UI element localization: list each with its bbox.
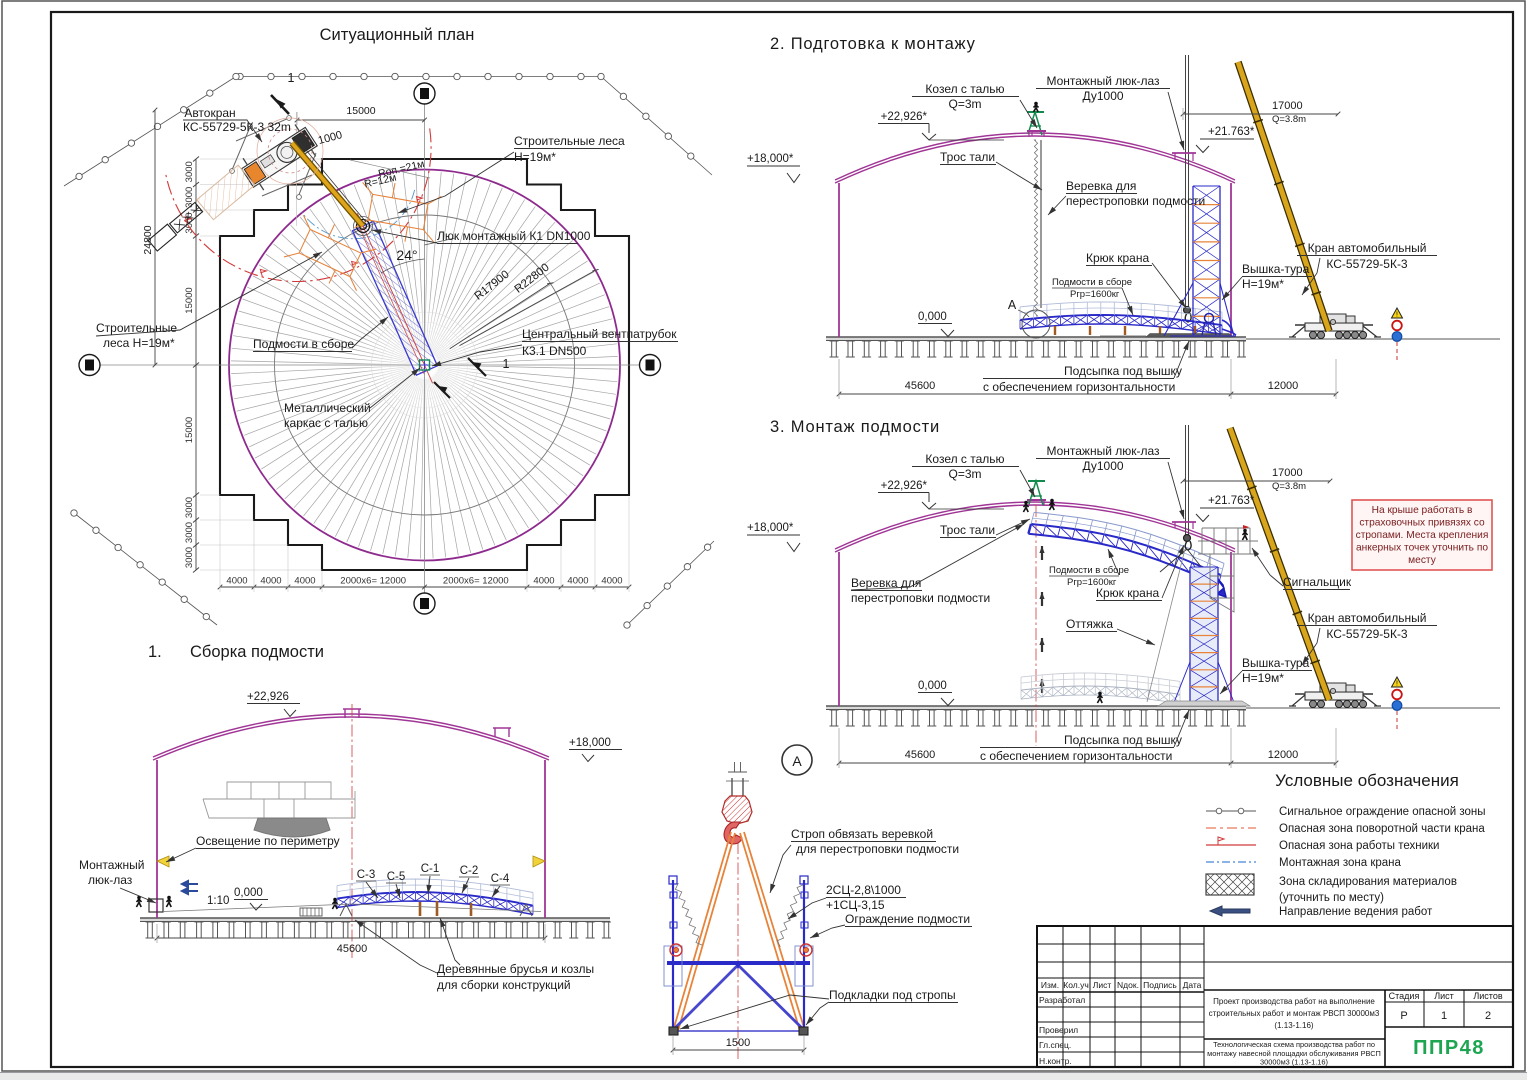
svg-text:Р: Р [1400, 1010, 1407, 1022]
svg-text:каркас с талью: каркас с талью [284, 416, 368, 430]
svg-text:Строп обвязать веревкой: Строп обвязать веревкой [791, 827, 933, 841]
svg-text:+18,000: +18,000 [569, 737, 611, 749]
svg-text:Кол.уч: Кол.уч [1063, 980, 1089, 990]
svg-text:3000: 3000 [184, 187, 195, 208]
svg-text:Ду1000: Ду1000 [1082, 459, 1123, 473]
svg-text:Проверил: Проверил [1039, 1025, 1078, 1035]
svg-text:+18,000*: +18,000* [747, 153, 794, 165]
svg-text:А: А [1008, 298, 1017, 312]
svg-text:1.: 1. [148, 643, 162, 661]
svg-text:1: 1 [1441, 1010, 1447, 1022]
svg-text:+22,926*: +22,926* [881, 480, 928, 492]
svg-text:С-4: С-4 [491, 873, 510, 885]
svg-text:Монтажный люк-лаз: Монтажный люк-лаз [1046, 444, 1160, 458]
svg-text:+22,926*: +22,926* [881, 111, 928, 123]
svg-text:Трос тали: Трос тали [940, 150, 995, 164]
svg-text:1: 1 [288, 71, 295, 85]
svg-text:12000: 12000 [1268, 380, 1299, 392]
svg-text:К3.1 DN500: К3.1 DN500 [522, 344, 587, 358]
svg-text:0,000: 0,000 [234, 887, 263, 899]
svg-text:Сборка подмости: Сборка подмости [190, 643, 324, 661]
svg-text:С-1: С-1 [421, 863, 440, 875]
svg-text:Лист: Лист [1434, 991, 1454, 1001]
svg-text:0,000: 0,000 [918, 311, 947, 323]
svg-text:4000: 4000 [260, 576, 281, 587]
svg-text:С-3: С-3 [357, 869, 376, 881]
svg-text:анкерных точек уточнить по: анкерных точек уточнить по [1356, 543, 1488, 554]
svg-text:Направление ведения работ: Направление ведения работ [1279, 906, 1433, 918]
svg-text:(уточнить по месту): (уточнить по месту) [1279, 892, 1384, 904]
svg-text:Ситуационный план: Ситуационный план [320, 26, 475, 44]
svg-text:Сигнальщик: Сигнальщик [1283, 575, 1352, 589]
svg-text:леса Н=19м*: леса Н=19м* [103, 336, 175, 350]
svg-text:Сигнальное ограждение опасной: Сигнальное ограждение опасной зоны [1279, 806, 1486, 818]
svg-text:Подпись: Подпись [1143, 980, 1177, 990]
svg-text:17000: 17000 [1272, 467, 1303, 479]
svg-text:для сборки конструкций: для сборки конструкций [437, 978, 571, 992]
svg-text:Автокран: Автокран [184, 106, 235, 120]
svg-text:месту: месту [1408, 555, 1437, 566]
svg-text:Q=3m: Q=3m [948, 467, 981, 481]
svg-text:24°: 24° [396, 247, 417, 263]
svg-text:Козел с талью: Козел с талью [925, 82, 1004, 96]
svg-text:Подкладки под стропы: Подкладки под стропы [829, 988, 956, 1002]
svg-text:Подсыпка под вышку: Подсыпка под вышку [1064, 364, 1182, 378]
svg-text:Технологическая схема производ: Технологическая схема производства работ… [1213, 1040, 1375, 1049]
svg-text:Разработал: Разработал [1039, 995, 1085, 1005]
svg-text:КС-55729-5К-3: КС-55729-5К-3 [1326, 257, 1408, 271]
svg-text:Проект производства работ на в: Проект производства работ на выполнение [1213, 997, 1375, 1006]
svg-text:Кран автомобильный: Кран автомобильный [1308, 611, 1427, 625]
svg-text:Н=19м*: Н=19м* [1242, 277, 1284, 291]
svg-text:Монтажный: Монтажный [79, 858, 144, 872]
svg-text:3000: 3000 [184, 497, 195, 518]
svg-text:2: 2 [1485, 1010, 1491, 1022]
svg-text:для перестроповки подмости: для перестроповки подмости [796, 842, 959, 856]
svg-text:Подмости в сборе: Подмости в сборе [1052, 277, 1132, 288]
svg-text:45600: 45600 [905, 380, 936, 392]
svg-text:2000x6= 12000: 2000x6= 12000 [340, 576, 406, 587]
svg-text:4000: 4000 [533, 576, 554, 587]
svg-text:А: А [792, 753, 802, 769]
svg-text:Веревка для: Веревка для [1066, 179, 1136, 193]
svg-text:Н=19м*: Н=19м* [514, 150, 556, 164]
svg-text:1:10: 1:10 [207, 895, 229, 907]
svg-text:Опасная зона работы техники: Опасная зона работы техники [1279, 840, 1439, 852]
svg-text:Подмости в сборе: Подмости в сборе [253, 337, 354, 351]
svg-text:ППР48: ППР48 [1413, 1037, 1485, 1059]
svg-text:Трос тали: Трос тали [940, 523, 995, 537]
svg-text:КС-55729-5К-3 32m: КС-55729-5К-3 32m [183, 120, 291, 134]
svg-text:Лист: Лист [1093, 980, 1112, 990]
svg-text:КС-55729-5К-3: КС-55729-5К-3 [1326, 627, 1408, 641]
svg-text:45600: 45600 [905, 749, 936, 761]
svg-text:!: ! [1396, 681, 1398, 688]
svg-text:Освещение по периметру: Освещение по периметру [196, 834, 340, 848]
svg-text:4000: 4000 [601, 576, 622, 587]
svg-text:(1.13-1.16): (1.13-1.16) [1274, 1021, 1313, 1030]
svg-text:15000: 15000 [184, 417, 195, 443]
svg-text:Гл.спец.: Гл.спец. [1039, 1040, 1071, 1050]
svg-text:3. Монтаж подмости: 3. Монтаж подмости [770, 418, 940, 436]
svg-text:Оттяжка: Оттяжка [1066, 617, 1113, 631]
svg-text:Nдок.: Nдок. [1117, 980, 1139, 990]
svg-text:перестроповки подмости: перестроповки подмости [1066, 194, 1205, 208]
svg-text:17000: 17000 [1272, 100, 1303, 112]
svg-text:Н=19м*: Н=19м* [1242, 671, 1284, 685]
svg-text:Металлический: Металлический [284, 401, 371, 415]
svg-text:стропами. Места крепления: стропами. Места крепления [1356, 530, 1489, 541]
svg-text:1: 1 [503, 357, 510, 371]
svg-text:страховочных привязях со: страховочных привязях со [1359, 518, 1485, 529]
svg-text:Подсыпка под вышку: Подсыпка под вышку [1064, 733, 1182, 747]
svg-text:Условные обозначения: Условные обозначения [1275, 771, 1459, 790]
svg-text:Строительные леса: Строительные леса [514, 134, 625, 148]
svg-text:Н.контр.: Н.контр. [1039, 1056, 1072, 1066]
svg-text:Ограждение подмости: Ограждение подмости [845, 912, 970, 926]
svg-text:Изм.: Изм. [1041, 980, 1059, 990]
svg-text:!: ! [1396, 312, 1398, 319]
svg-text:1500: 1500 [726, 1037, 750, 1049]
svg-text:люк-лаз: люк-лаз [88, 873, 133, 887]
svg-text:Зона складирования материалов: Зона складирования материалов [1279, 876, 1457, 888]
svg-text:С-2: С-2 [460, 865, 479, 877]
svg-text:Монтажный люк-лаз: Монтажный люк-лаз [1046, 74, 1160, 88]
svg-text:перестроповки подмости: перестроповки подмости [851, 591, 990, 605]
svg-text:Крюк крана: Крюк крана [1086, 251, 1149, 265]
svg-text:строительных работ и монтаж РВ: строительных работ и монтаж РВСП 30000м3 [1209, 1009, 1380, 1018]
svg-text:2СЦ-2,8\1000: 2СЦ-2,8\1000 [826, 883, 901, 897]
svg-text:0,000: 0,000 [918, 680, 947, 692]
svg-text:На крыше работать в: На крыше работать в [1372, 504, 1473, 516]
svg-text:Q=3.8m: Q=3.8m [1272, 481, 1306, 492]
svg-text:Вышка-тура: Вышка-тура [1242, 262, 1310, 276]
svg-text:15000: 15000 [184, 287, 195, 313]
svg-text:4000: 4000 [226, 576, 247, 587]
svg-text:Q=3m: Q=3m [948, 97, 981, 111]
svg-text:4000: 4000 [567, 576, 588, 587]
svg-text:2. Подготовка к монтажу: 2. Подготовка к монтажу [770, 35, 976, 53]
svg-text:Крюк крана: Крюк крана [1096, 586, 1159, 600]
svg-text:Дата: Дата [1183, 980, 1202, 990]
svg-text:3000: 3000 [184, 161, 195, 182]
svg-text:2000x6= 12000: 2000x6= 12000 [443, 576, 509, 587]
svg-text:Деревянные брусья и козлы: Деревянные брусья и козлы [437, 962, 594, 976]
svg-text:45600: 45600 [337, 943, 368, 955]
svg-text:12000: 12000 [1268, 749, 1299, 761]
svg-text:с обеспечением горизонтальност: с обеспечением горизонтальности [980, 749, 1172, 763]
svg-text:Стадия: Стадия [1389, 991, 1420, 1001]
svg-text:с обеспечением горизонтальност: с обеспечением горизонтальности [983, 380, 1175, 394]
svg-text:Вышка-тура: Вышка-тура [1242, 656, 1310, 670]
svg-text:3000: 3000 [184, 522, 195, 543]
svg-text:Козел с талью: Козел с талью [925, 452, 1004, 466]
svg-text:Кран автомобильный: Кран автомобильный [1308, 241, 1427, 255]
svg-text:4000: 4000 [294, 576, 315, 587]
svg-text:Опасная зона поворотной части: Опасная зона поворотной части крана [1279, 823, 1485, 835]
svg-text:+21.763*: +21.763* [1208, 126, 1255, 138]
svg-text:3000: 3000 [184, 547, 195, 568]
svg-text:Ргр=1600кг: Ргр=1600кг [1070, 289, 1120, 300]
svg-text:Монтажная зона крана: Монтажная зона крана [1279, 857, 1402, 869]
svg-text:Листов: Листов [1473, 991, 1502, 1001]
svg-text:Ду1000: Ду1000 [1082, 89, 1123, 103]
svg-text:+18,000*: +18,000* [747, 522, 794, 534]
svg-text:+1СЦ-3,15: +1СЦ-3,15 [826, 898, 885, 912]
svg-text:15000: 15000 [346, 105, 375, 117]
svg-text:+21.763*: +21.763* [1208, 495, 1255, 507]
svg-text:Центральный вентпатрубок: Центральный вентпатрубок [522, 327, 677, 341]
svg-text:Q=3.8m: Q=3.8m [1272, 114, 1306, 125]
svg-text:30000м3 (1.13-1.16): 30000м3 (1.13-1.16) [1260, 1058, 1328, 1067]
svg-text:С-5: С-5 [387, 871, 406, 883]
svg-text:+22,926: +22,926 [247, 691, 289, 703]
svg-text:Люк монтажный К1 DN1000: Люк монтажный К1 DN1000 [437, 229, 591, 243]
